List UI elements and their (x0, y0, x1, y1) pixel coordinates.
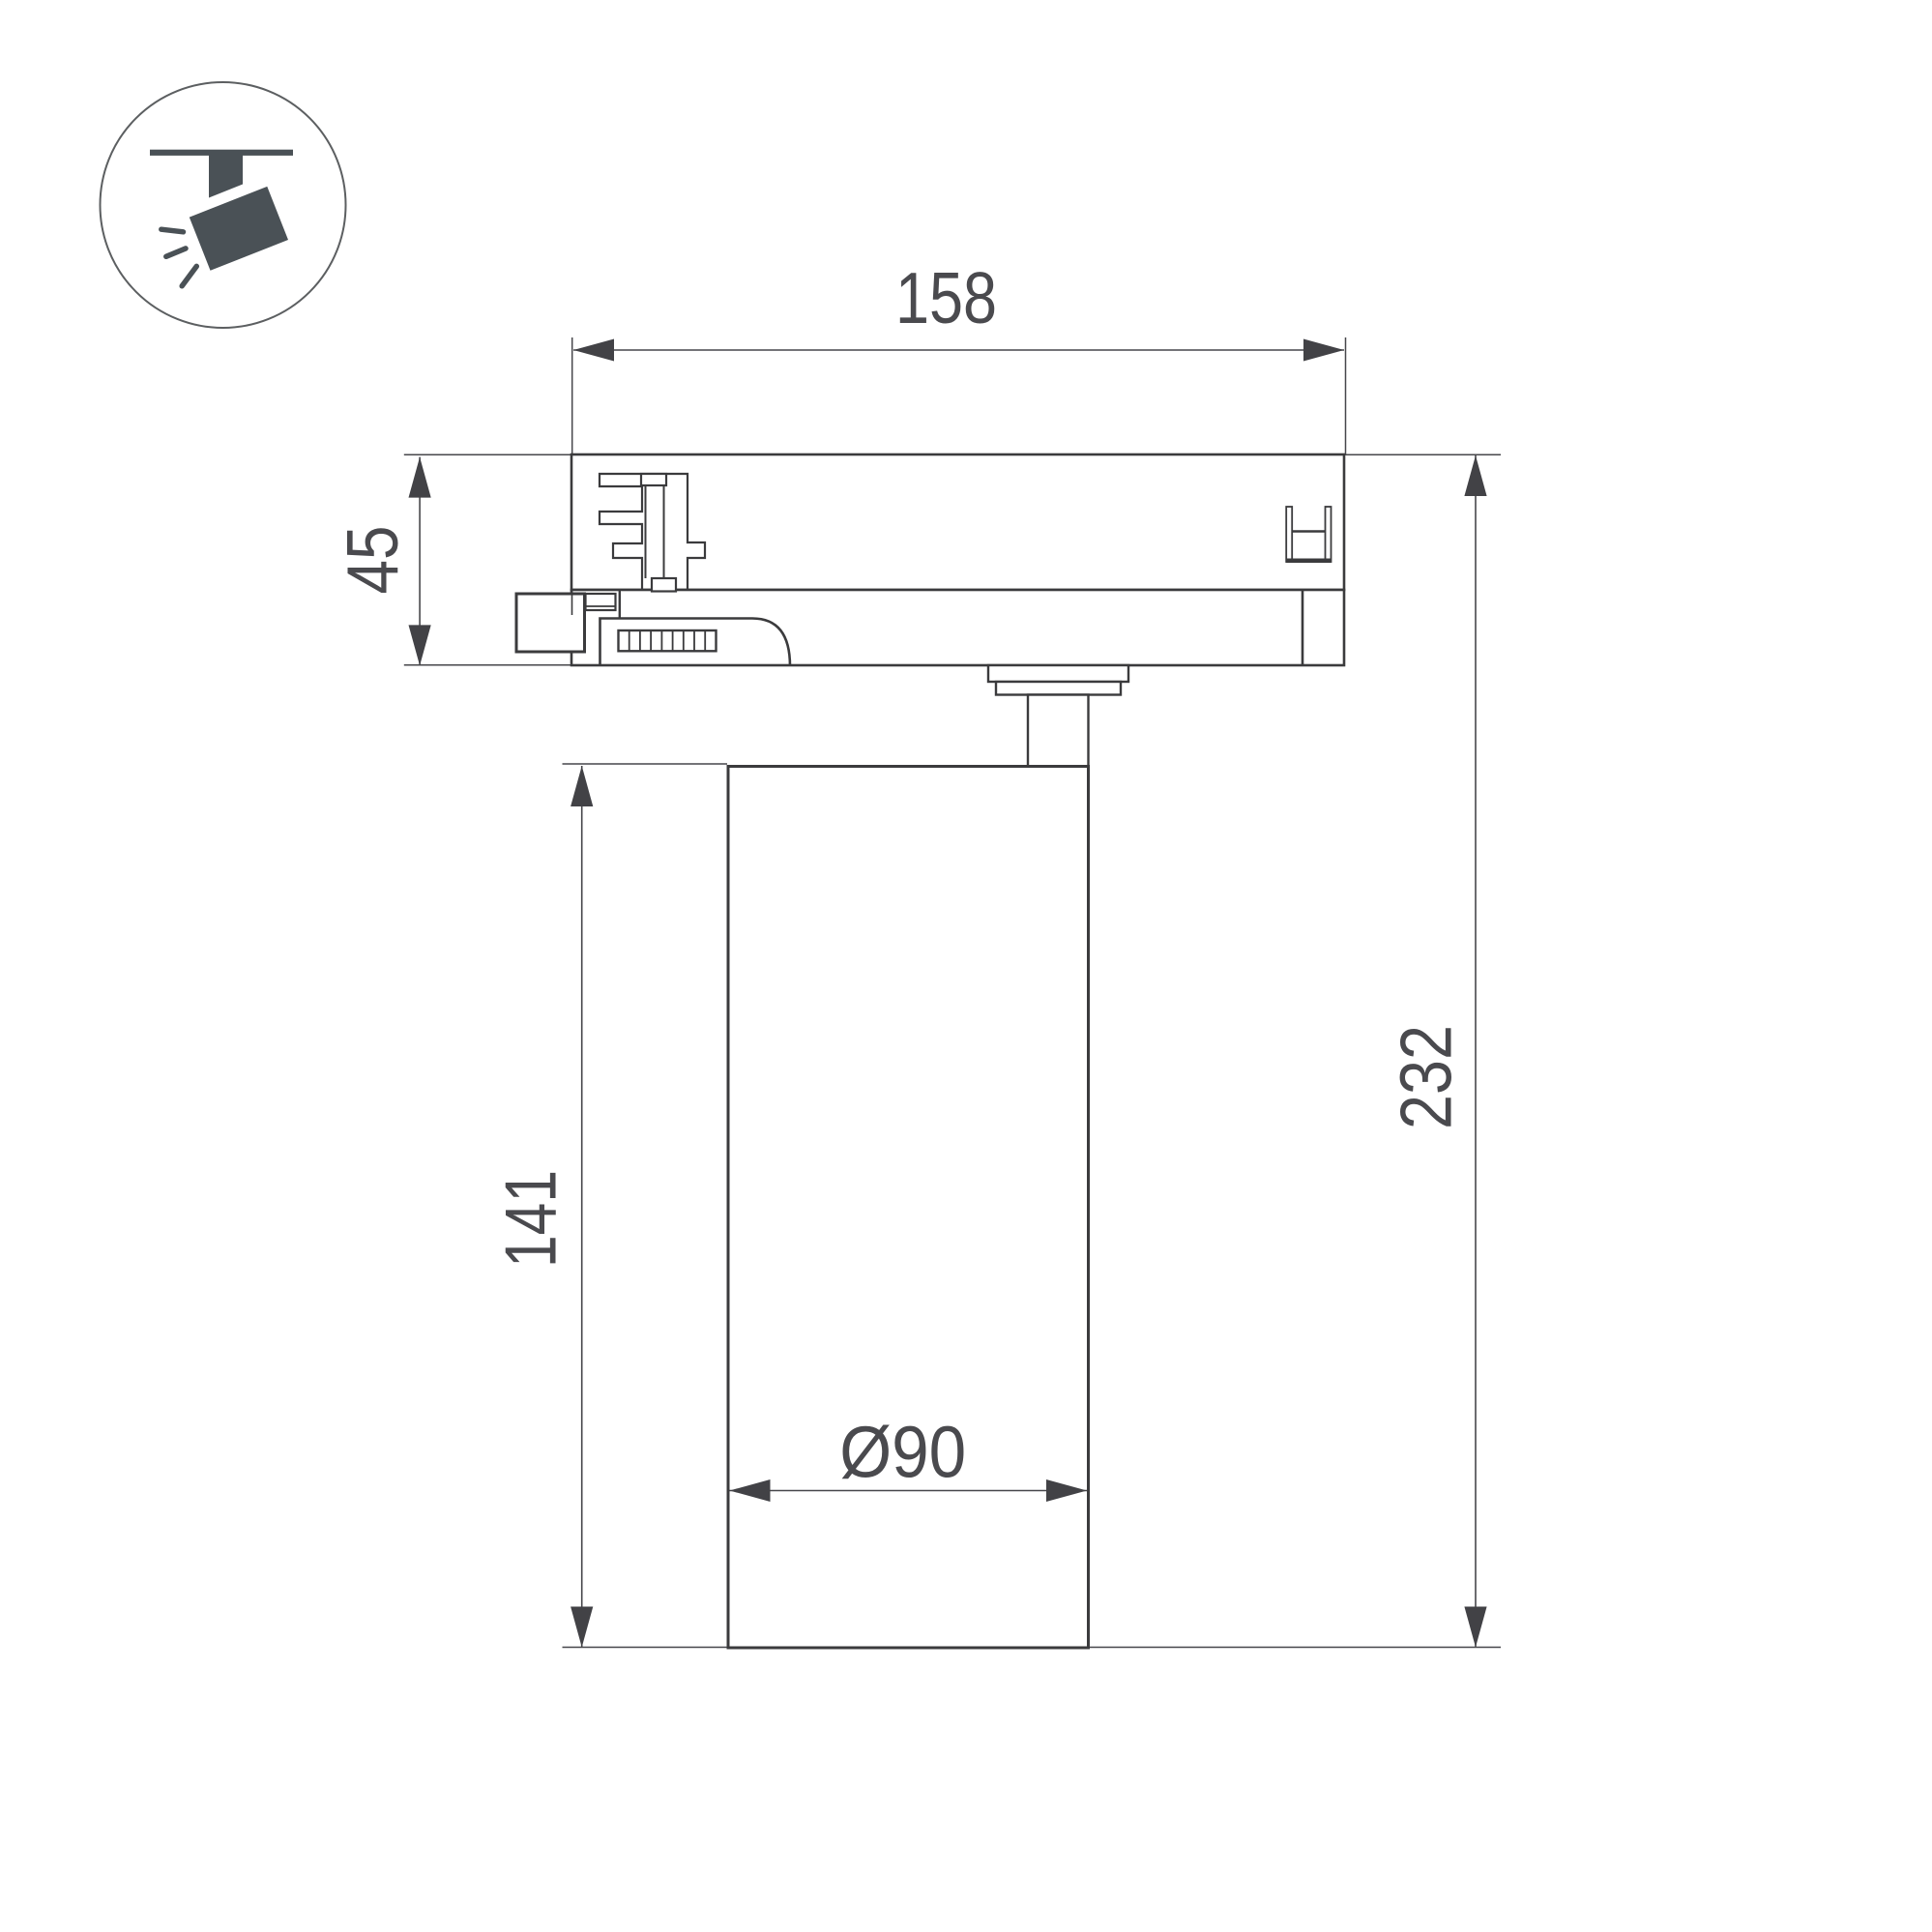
svg-text:Ø90: Ø90 (839, 1412, 966, 1493)
svg-text:158: 158 (895, 257, 997, 338)
svg-text:45: 45 (332, 526, 413, 595)
svg-text:232: 232 (1386, 1025, 1467, 1129)
svg-text:141: 141 (490, 1170, 571, 1268)
